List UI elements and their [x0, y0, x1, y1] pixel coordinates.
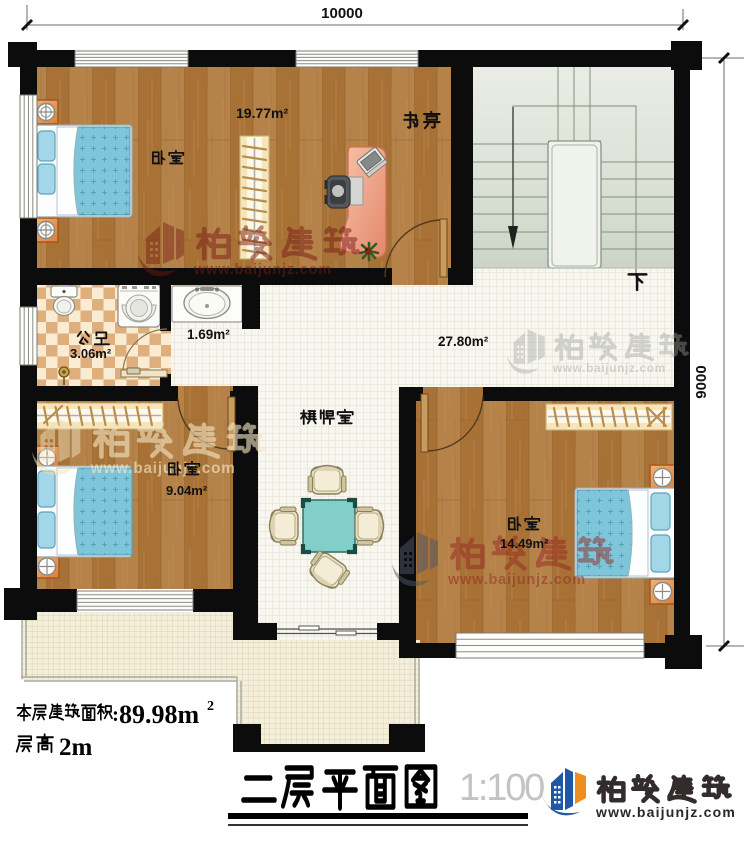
- svg-text:2m: 2m: [59, 734, 93, 761]
- svg-text:www.baijunjz.com: www.baijunjz.com: [552, 361, 666, 375]
- svg-text:19.77m²: 19.77m²: [236, 105, 288, 121]
- svg-text:www.baijunjz.com: www.baijunjz.com: [193, 262, 332, 278]
- svg-text:www.baijunjz.com: www.baijunjz.com: [595, 804, 736, 820]
- svg-text:2: 2: [207, 699, 214, 714]
- svg-text:1.69m²: 1.69m²: [187, 327, 230, 342]
- svg-text:9.04m²: 9.04m²: [166, 483, 208, 498]
- svg-text:9000: 9000: [693, 365, 710, 398]
- svg-text:www.baijunjz.com: www.baijunjz.com: [90, 460, 236, 477]
- svg-text:1:100: 1:100: [459, 767, 544, 809]
- svg-text:3.06m²: 3.06m²: [70, 346, 112, 361]
- svg-text:10000: 10000: [321, 5, 363, 22]
- svg-text:www.baijunjz.com: www.baijunjz.com: [447, 572, 586, 588]
- svg-text:89.98m: 89.98m: [119, 700, 200, 729]
- svg-text:14.49m²: 14.49m²: [500, 536, 549, 551]
- svg-text:27.80m²: 27.80m²: [438, 334, 489, 349]
- svg-text::: :: [112, 702, 119, 726]
